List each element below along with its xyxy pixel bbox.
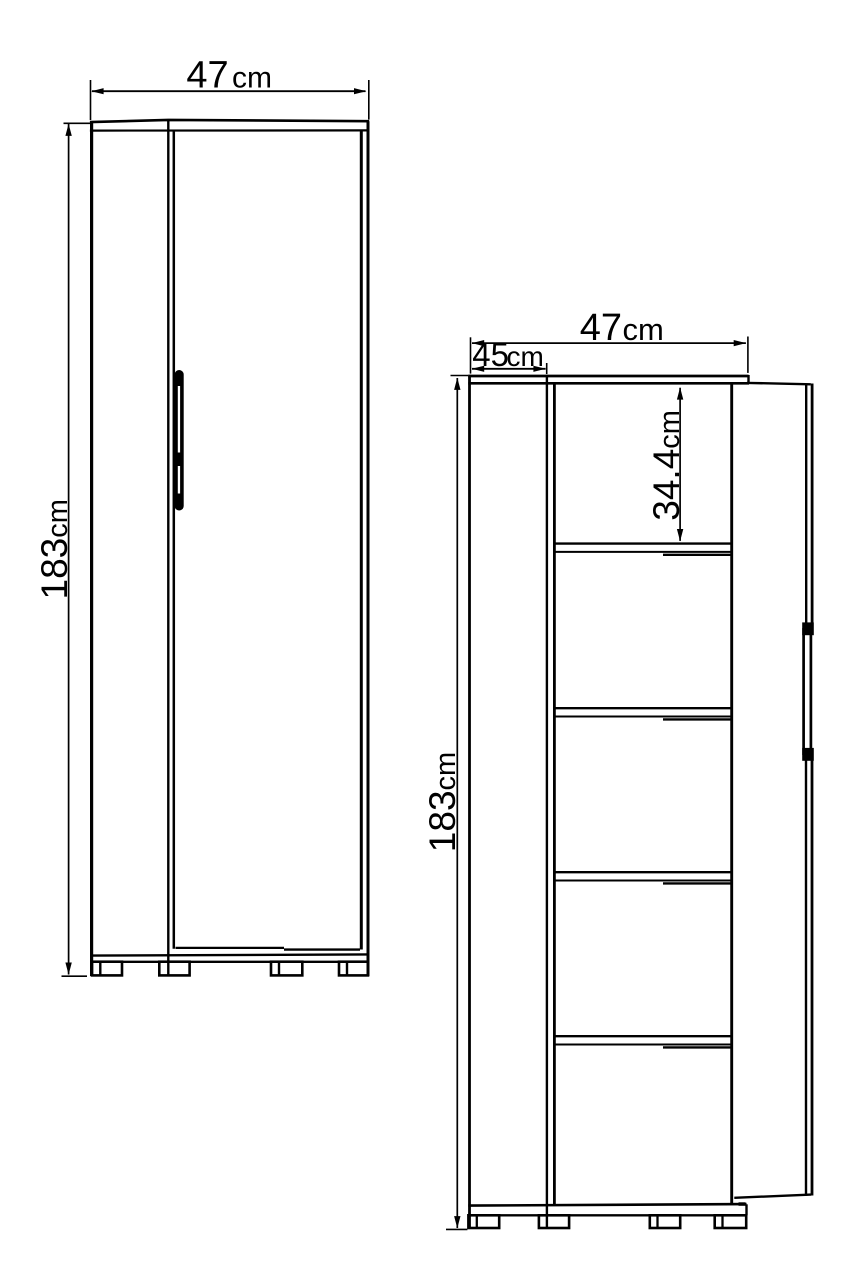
svg-text:47: 47 [580, 307, 622, 349]
svg-text:cm: cm [507, 341, 544, 372]
svg-text:45: 45 [472, 336, 509, 373]
svg-text:cm: cm [623, 312, 664, 347]
svg-text:cm: cm [232, 61, 272, 94]
svg-text:47: 47 [186, 54, 228, 96]
